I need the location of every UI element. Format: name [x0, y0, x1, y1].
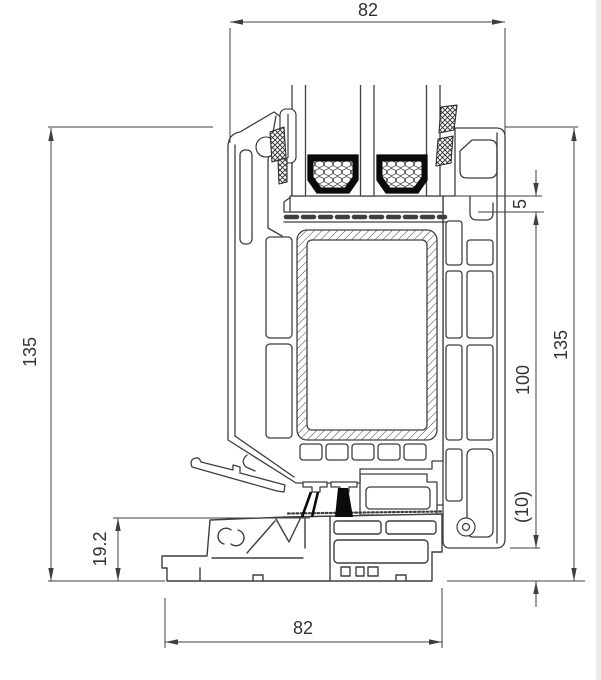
steel-inner [307, 240, 427, 430]
dim-left-height-label: 135 [20, 337, 40, 367]
scan-edge-artifact [596, 0, 601, 680]
cross-section-drawing: 82 135 19.2 82 5 100 (10) 135 [0, 0, 601, 680]
dim-top-width-label: 82 [358, 0, 378, 20]
screw-center [463, 524, 470, 531]
glass-pane-middle [361, 85, 375, 196]
dim-frame-height-label: 100 [513, 365, 533, 395]
bead-gasket-hatch [270, 127, 286, 162]
dim-right-height-label: 135 [551, 330, 571, 360]
outer-seal-hatch-lower [436, 136, 453, 166]
spacer-honeycomb-right [382, 161, 422, 188]
outer-seal-hatch-upper [439, 105, 457, 133]
fixing-screw [457, 518, 475, 536]
setting-block [290, 196, 443, 212]
technical-drawing-canvas: 82 135 19.2 82 5 100 (10) 135 [0, 0, 601, 680]
dim-edge-cover-label: 5 [510, 199, 530, 209]
dim-bottom-width-label: 82 [293, 618, 313, 638]
bead-gasket-hatch-lower [278, 158, 287, 184]
dim-threshold-height-label: 19.2 [90, 531, 110, 566]
steel-reinforcement [297, 230, 437, 440]
dim-clearance-label: (10) [512, 491, 532, 523]
spacer-honeycomb-left [313, 161, 353, 188]
